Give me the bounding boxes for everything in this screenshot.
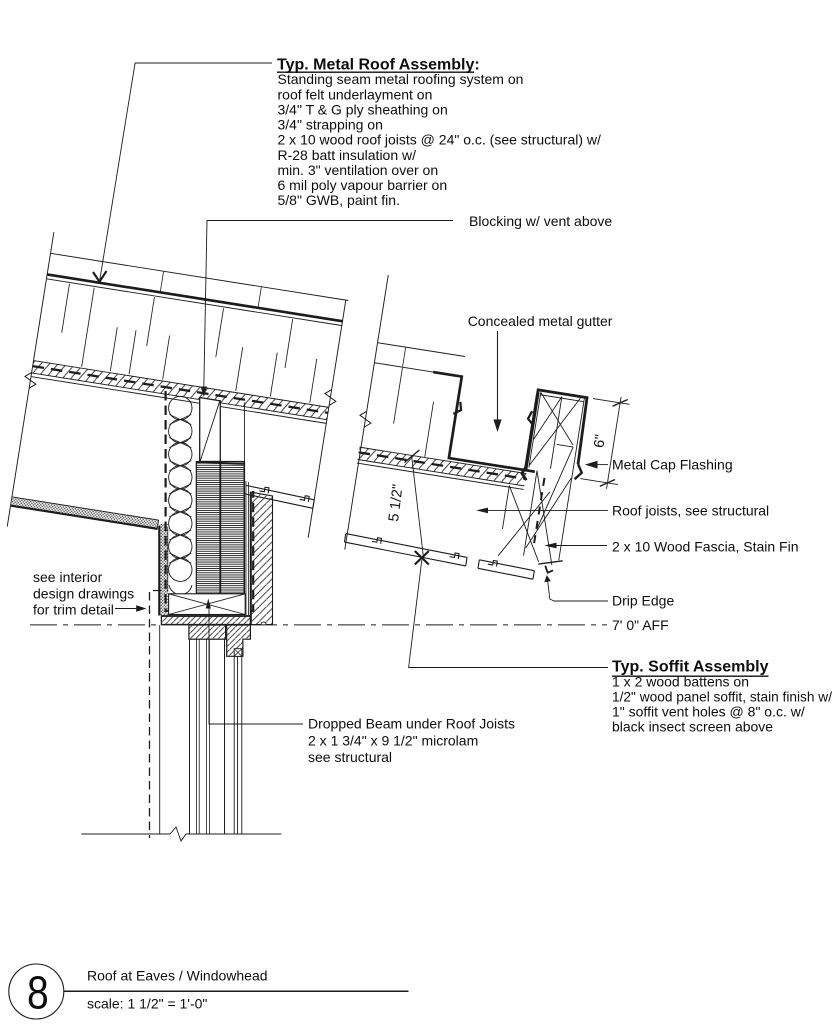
svg-text:2 x 10 Wood Fascia, Stain Fin: 2 x 10 Wood Fascia, Stain Fin — [612, 539, 799, 555]
svg-text:2 x 1 3/4" x 9 1/2" microlam: 2 x 1 3/4" x 9 1/2" microlam — [308, 732, 478, 748]
svg-text:3/4" T & G ply sheathing on: 3/4" T & G ply sheathing on — [278, 101, 448, 117]
svg-text:Drip Edge: Drip Edge — [612, 593, 674, 609]
svg-text:see interior: see interior — [33, 569, 103, 585]
svg-text:Metal Cap Flashing: Metal Cap Flashing — [612, 457, 733, 473]
svg-text:R-28 batt insulation w/: R-28 batt insulation w/ — [278, 147, 417, 163]
svg-text:Roof joists, see structural: Roof joists, see structural — [612, 503, 769, 519]
svg-text:roof felt underlayment on: roof felt underlayment on — [278, 86, 433, 102]
svg-text:1 x 2 wood battens on: 1 x 2 wood battens on — [612, 673, 749, 689]
svg-text:8: 8 — [27, 967, 49, 1019]
svg-text:Dropped Beam under Roof Joists: Dropped Beam under Roof Joists — [308, 716, 515, 732]
svg-text:Roof at Eaves / Windowhead: Roof at Eaves / Windowhead — [87, 968, 268, 984]
svg-text:design drawings: design drawings — [33, 585, 134, 601]
svg-text:7' 0" AFF: 7' 0" AFF — [612, 617, 669, 633]
svg-text:2 x 10 wood roof joists @ 24": 2 x 10 wood roof joists @ 24" o.c. (see … — [278, 132, 602, 148]
svg-text:Blocking w/ vent above: Blocking w/ vent above — [469, 213, 612, 229]
svg-text:min. 3" ventilation over on: min. 3" ventilation over on — [278, 162, 439, 178]
svg-text:Concealed metal gutter: Concealed metal gutter — [468, 313, 613, 329]
svg-text:3/4" strapping on: 3/4" strapping on — [278, 117, 383, 133]
svg-text:5/8" GWB, paint fin.: 5/8" GWB, paint fin. — [278, 192, 400, 208]
svg-text:black insect screen above: black insect screen above — [612, 719, 773, 735]
svg-text:see structural: see structural — [308, 749, 392, 765]
svg-text:6": 6" — [591, 433, 609, 449]
svg-text:scale: 1 1/2" = 1'-0": scale: 1 1/2" = 1'-0" — [87, 996, 207, 1012]
svg-text:6 mil poly vapour barrier on: 6 mil poly vapour barrier on — [278, 177, 448, 193]
svg-text:for trim detail: for trim detail — [33, 602, 114, 618]
svg-text:Standing seam metal roofing sy: Standing seam metal roofing system on — [278, 71, 524, 87]
svg-text:1" soffit vent holes @ 8" o.c.: 1" soffit vent holes @ 8" o.c. w/ — [612, 704, 805, 720]
svg-text:1/2" wood panel soffit, stain: 1/2" wood panel soffit, stain finish w/ — [612, 689, 832, 705]
